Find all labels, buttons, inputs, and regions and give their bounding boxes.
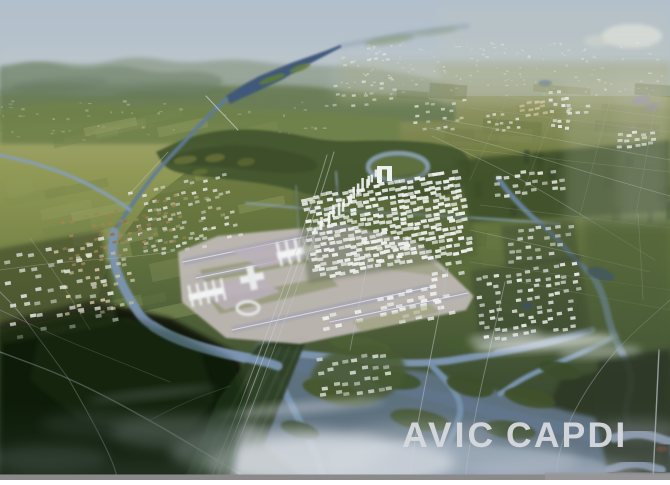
svg-text:CAPDI: CAPDI bbox=[506, 415, 627, 455]
svg-text:AVIC: AVIC bbox=[402, 415, 496, 455]
